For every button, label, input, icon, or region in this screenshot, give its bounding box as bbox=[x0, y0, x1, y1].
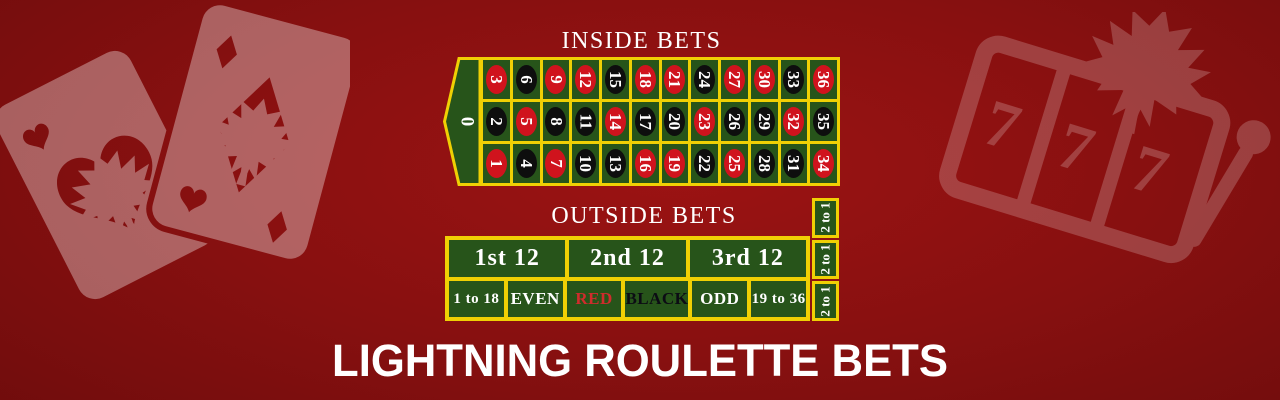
black-pocket: 4 bbox=[516, 149, 537, 178]
pocket-number: 22 bbox=[696, 155, 713, 172]
number-cell-3: 3 bbox=[483, 60, 510, 99]
pocket-number: 21 bbox=[666, 71, 683, 88]
number-cell-1: 1 bbox=[483, 144, 510, 183]
pocket-number: 4 bbox=[518, 159, 535, 168]
number-cell-28: 28 bbox=[751, 144, 778, 183]
number-cell-30: 30 bbox=[751, 60, 778, 99]
red-pocket: 27 bbox=[724, 65, 745, 94]
number-cell-32: 32 bbox=[781, 102, 808, 141]
black-pocket: 29 bbox=[754, 107, 775, 136]
pocket-number: 34 bbox=[815, 155, 832, 172]
column-bet-label: 2 to 1 bbox=[819, 244, 832, 274]
black-pocket: 33 bbox=[783, 65, 804, 94]
pocket-number: 10 bbox=[577, 155, 594, 172]
slot-machine-icon: 7 7 7 bbox=[938, 12, 1280, 297]
red-pocket: 21 bbox=[664, 65, 685, 94]
dozens-row: 1st 122nd 123rd 12 bbox=[449, 240, 806, 277]
number-cell-14: 14 bbox=[602, 102, 629, 141]
black-pocket: 8 bbox=[545, 107, 566, 136]
red-pocket: 34 bbox=[813, 149, 834, 178]
outside-bets-title: OUTSIDE BETS bbox=[448, 204, 840, 228]
number-cell-4: 4 bbox=[513, 144, 540, 183]
column-bet-cell: 2 to 1 bbox=[812, 198, 839, 238]
red-pocket: 16 bbox=[635, 149, 656, 178]
number-cell-34: 34 bbox=[810, 144, 837, 183]
column-bet-cell: 2 to 1 bbox=[812, 240, 839, 280]
number-cell-26: 26 bbox=[721, 102, 748, 141]
red-pocket: 5 bbox=[516, 107, 537, 136]
pocket-number: 16 bbox=[637, 155, 654, 172]
number-cell-15: 15 bbox=[602, 60, 629, 99]
page-title: LIGHTNING ROULETTE BETS bbox=[19, 338, 1261, 383]
column-bets: 2 to 12 to 12 to 1 bbox=[812, 198, 839, 321]
black-pocket: 2 bbox=[486, 107, 507, 136]
even-money-row: 1 to 18EVENREDBLACKODD19 to 36 bbox=[449, 281, 806, 317]
column-bet-label: 2 to 1 bbox=[819, 203, 832, 233]
red-pocket: 14 bbox=[605, 107, 626, 136]
number-cell-22: 22 bbox=[691, 144, 718, 183]
red-pocket: 19 bbox=[664, 149, 685, 178]
number-cell-9: 9 bbox=[543, 60, 570, 99]
number-cell-18: 18 bbox=[632, 60, 659, 99]
pocket-number: 12 bbox=[577, 71, 594, 88]
dozen-bet-cell: 1st 12 bbox=[449, 240, 565, 277]
dozen-bet-cell: 3rd 12 bbox=[690, 240, 806, 277]
red-pocket: 9 bbox=[545, 65, 566, 94]
pocket-number: 20 bbox=[666, 113, 683, 130]
black-pocket: 35 bbox=[813, 107, 834, 136]
number-cell-27: 27 bbox=[721, 60, 748, 99]
number-cell-24: 24 bbox=[691, 60, 718, 99]
pocket-number: 19 bbox=[666, 155, 683, 172]
pocket-number: 30 bbox=[756, 71, 773, 88]
black-pocket: 11 bbox=[575, 107, 596, 136]
pocket-number: 33 bbox=[785, 71, 802, 88]
playing-cards-icon bbox=[0, 0, 350, 310]
column-bet-label: 2 to 1 bbox=[819, 286, 832, 316]
pocket-number: 2 bbox=[488, 117, 505, 126]
number-cell-11: 11 bbox=[572, 102, 599, 141]
number-cell-23: 23 bbox=[691, 102, 718, 141]
inside-bets-title: INSIDE BETS bbox=[443, 29, 840, 53]
pocket-number: 24 bbox=[696, 71, 713, 88]
red-pocket: 12 bbox=[575, 65, 596, 94]
number-cell-7: 7 bbox=[543, 144, 570, 183]
black-pocket: 22 bbox=[694, 149, 715, 178]
pocket-number: 25 bbox=[726, 155, 743, 172]
pocket-number: 15 bbox=[607, 71, 624, 88]
black-pocket: 26 bbox=[724, 107, 745, 136]
number-cell-16: 16 bbox=[632, 144, 659, 183]
pocket-number: 1 bbox=[488, 159, 505, 168]
number-cell-29: 29 bbox=[751, 102, 778, 141]
red-pocket: 32 bbox=[783, 107, 804, 136]
number-cell-33: 33 bbox=[781, 60, 808, 99]
pocket-number: 26 bbox=[726, 113, 743, 130]
pocket-number: 23 bbox=[696, 113, 713, 130]
red-pocket: 3 bbox=[486, 65, 507, 94]
number-cell-12: 12 bbox=[572, 60, 599, 99]
pocket-number: 6 bbox=[518, 75, 535, 84]
column-bet-cell: 2 to 1 bbox=[812, 281, 839, 321]
even-money-cell-black: BLACK bbox=[625, 281, 688, 317]
even-money-cell-red: RED bbox=[567, 281, 622, 317]
number-cell-21: 21 bbox=[662, 60, 689, 99]
red-pocket: 18 bbox=[635, 65, 656, 94]
number-cell-25: 25 bbox=[721, 144, 748, 183]
zero-cell: 0 bbox=[443, 57, 480, 186]
number-cell-13: 13 bbox=[602, 144, 629, 183]
inside-number-grid: 3691215182124273033362581114172023262932… bbox=[480, 57, 840, 186]
red-pocket: 25 bbox=[724, 149, 745, 178]
even-money-cell-19-to-36: 19 to 36 bbox=[751, 281, 806, 317]
even-money-cell-odd: ODD bbox=[692, 281, 747, 317]
black-pocket: 10 bbox=[575, 149, 596, 178]
zero-number: 0 bbox=[457, 117, 476, 127]
pocket-number: 36 bbox=[815, 71, 832, 88]
pocket-number: 28 bbox=[756, 155, 773, 172]
number-cell-10: 10 bbox=[572, 144, 599, 183]
black-pocket: 31 bbox=[783, 149, 804, 178]
number-cell-17: 17 bbox=[632, 102, 659, 141]
pocket-number: 5 bbox=[518, 117, 535, 126]
black-pocket: 28 bbox=[754, 149, 775, 178]
number-cell-19: 19 bbox=[662, 144, 689, 183]
pocket-number: 9 bbox=[547, 75, 564, 84]
number-cell-6: 6 bbox=[513, 60, 540, 99]
card-diamonds-maple-leaf bbox=[148, 1, 350, 263]
even-money-cell-even: EVEN bbox=[508, 281, 563, 317]
hero-banner: 7 7 7 INSIDE BETS 0 36912151821242730333… bbox=[0, 0, 1280, 400]
pocket-number: 35 bbox=[815, 113, 832, 130]
number-cell-8: 8 bbox=[543, 102, 570, 141]
seven-glyph: 7 bbox=[1123, 131, 1176, 210]
pocket-number: 17 bbox=[637, 113, 654, 130]
dozen-bet-cell: 2nd 12 bbox=[569, 240, 685, 277]
pocket-number: 18 bbox=[637, 71, 654, 88]
number-cell-20: 20 bbox=[662, 102, 689, 141]
pocket-number: 32 bbox=[785, 113, 802, 130]
even-money-cell-1-to-18: 1 to 18 bbox=[449, 281, 504, 317]
black-pocket: 24 bbox=[694, 65, 715, 94]
pocket-number: 11 bbox=[577, 113, 594, 129]
black-pocket: 6 bbox=[516, 65, 537, 94]
number-cell-2: 2 bbox=[483, 102, 510, 141]
pocket-number: 7 bbox=[547, 159, 564, 168]
number-cell-5: 5 bbox=[513, 102, 540, 141]
red-pocket: 1 bbox=[486, 149, 507, 178]
number-cell-35: 35 bbox=[810, 102, 837, 141]
pocket-number: 14 bbox=[607, 113, 624, 130]
red-pocket: 23 bbox=[694, 107, 715, 136]
pocket-number: 3 bbox=[488, 75, 505, 84]
outside-bets-table: 1st 122nd 123rd 12 1 to 18EVENREDBLACKOD… bbox=[445, 236, 810, 321]
black-pocket: 13 bbox=[605, 149, 626, 178]
black-pocket: 20 bbox=[664, 107, 685, 136]
seven-glyph: 7 bbox=[976, 86, 1029, 165]
black-pocket: 17 bbox=[635, 107, 656, 136]
pocket-number: 31 bbox=[785, 155, 802, 172]
inside-bets-table: 0 36912151821242730333625811141720232629… bbox=[443, 57, 840, 186]
red-pocket: 36 bbox=[813, 65, 834, 94]
black-pocket: 15 bbox=[605, 65, 626, 94]
number-cell-31: 31 bbox=[781, 144, 808, 183]
pocket-number: 27 bbox=[726, 71, 743, 88]
red-pocket: 30 bbox=[754, 65, 775, 94]
number-cell-36: 36 bbox=[810, 60, 837, 99]
pocket-number: 29 bbox=[756, 113, 773, 130]
seven-glyph: 7 bbox=[1049, 108, 1102, 187]
pocket-number: 13 bbox=[607, 155, 624, 172]
pocket-number: 8 bbox=[547, 117, 564, 126]
red-pocket: 7 bbox=[545, 149, 566, 178]
